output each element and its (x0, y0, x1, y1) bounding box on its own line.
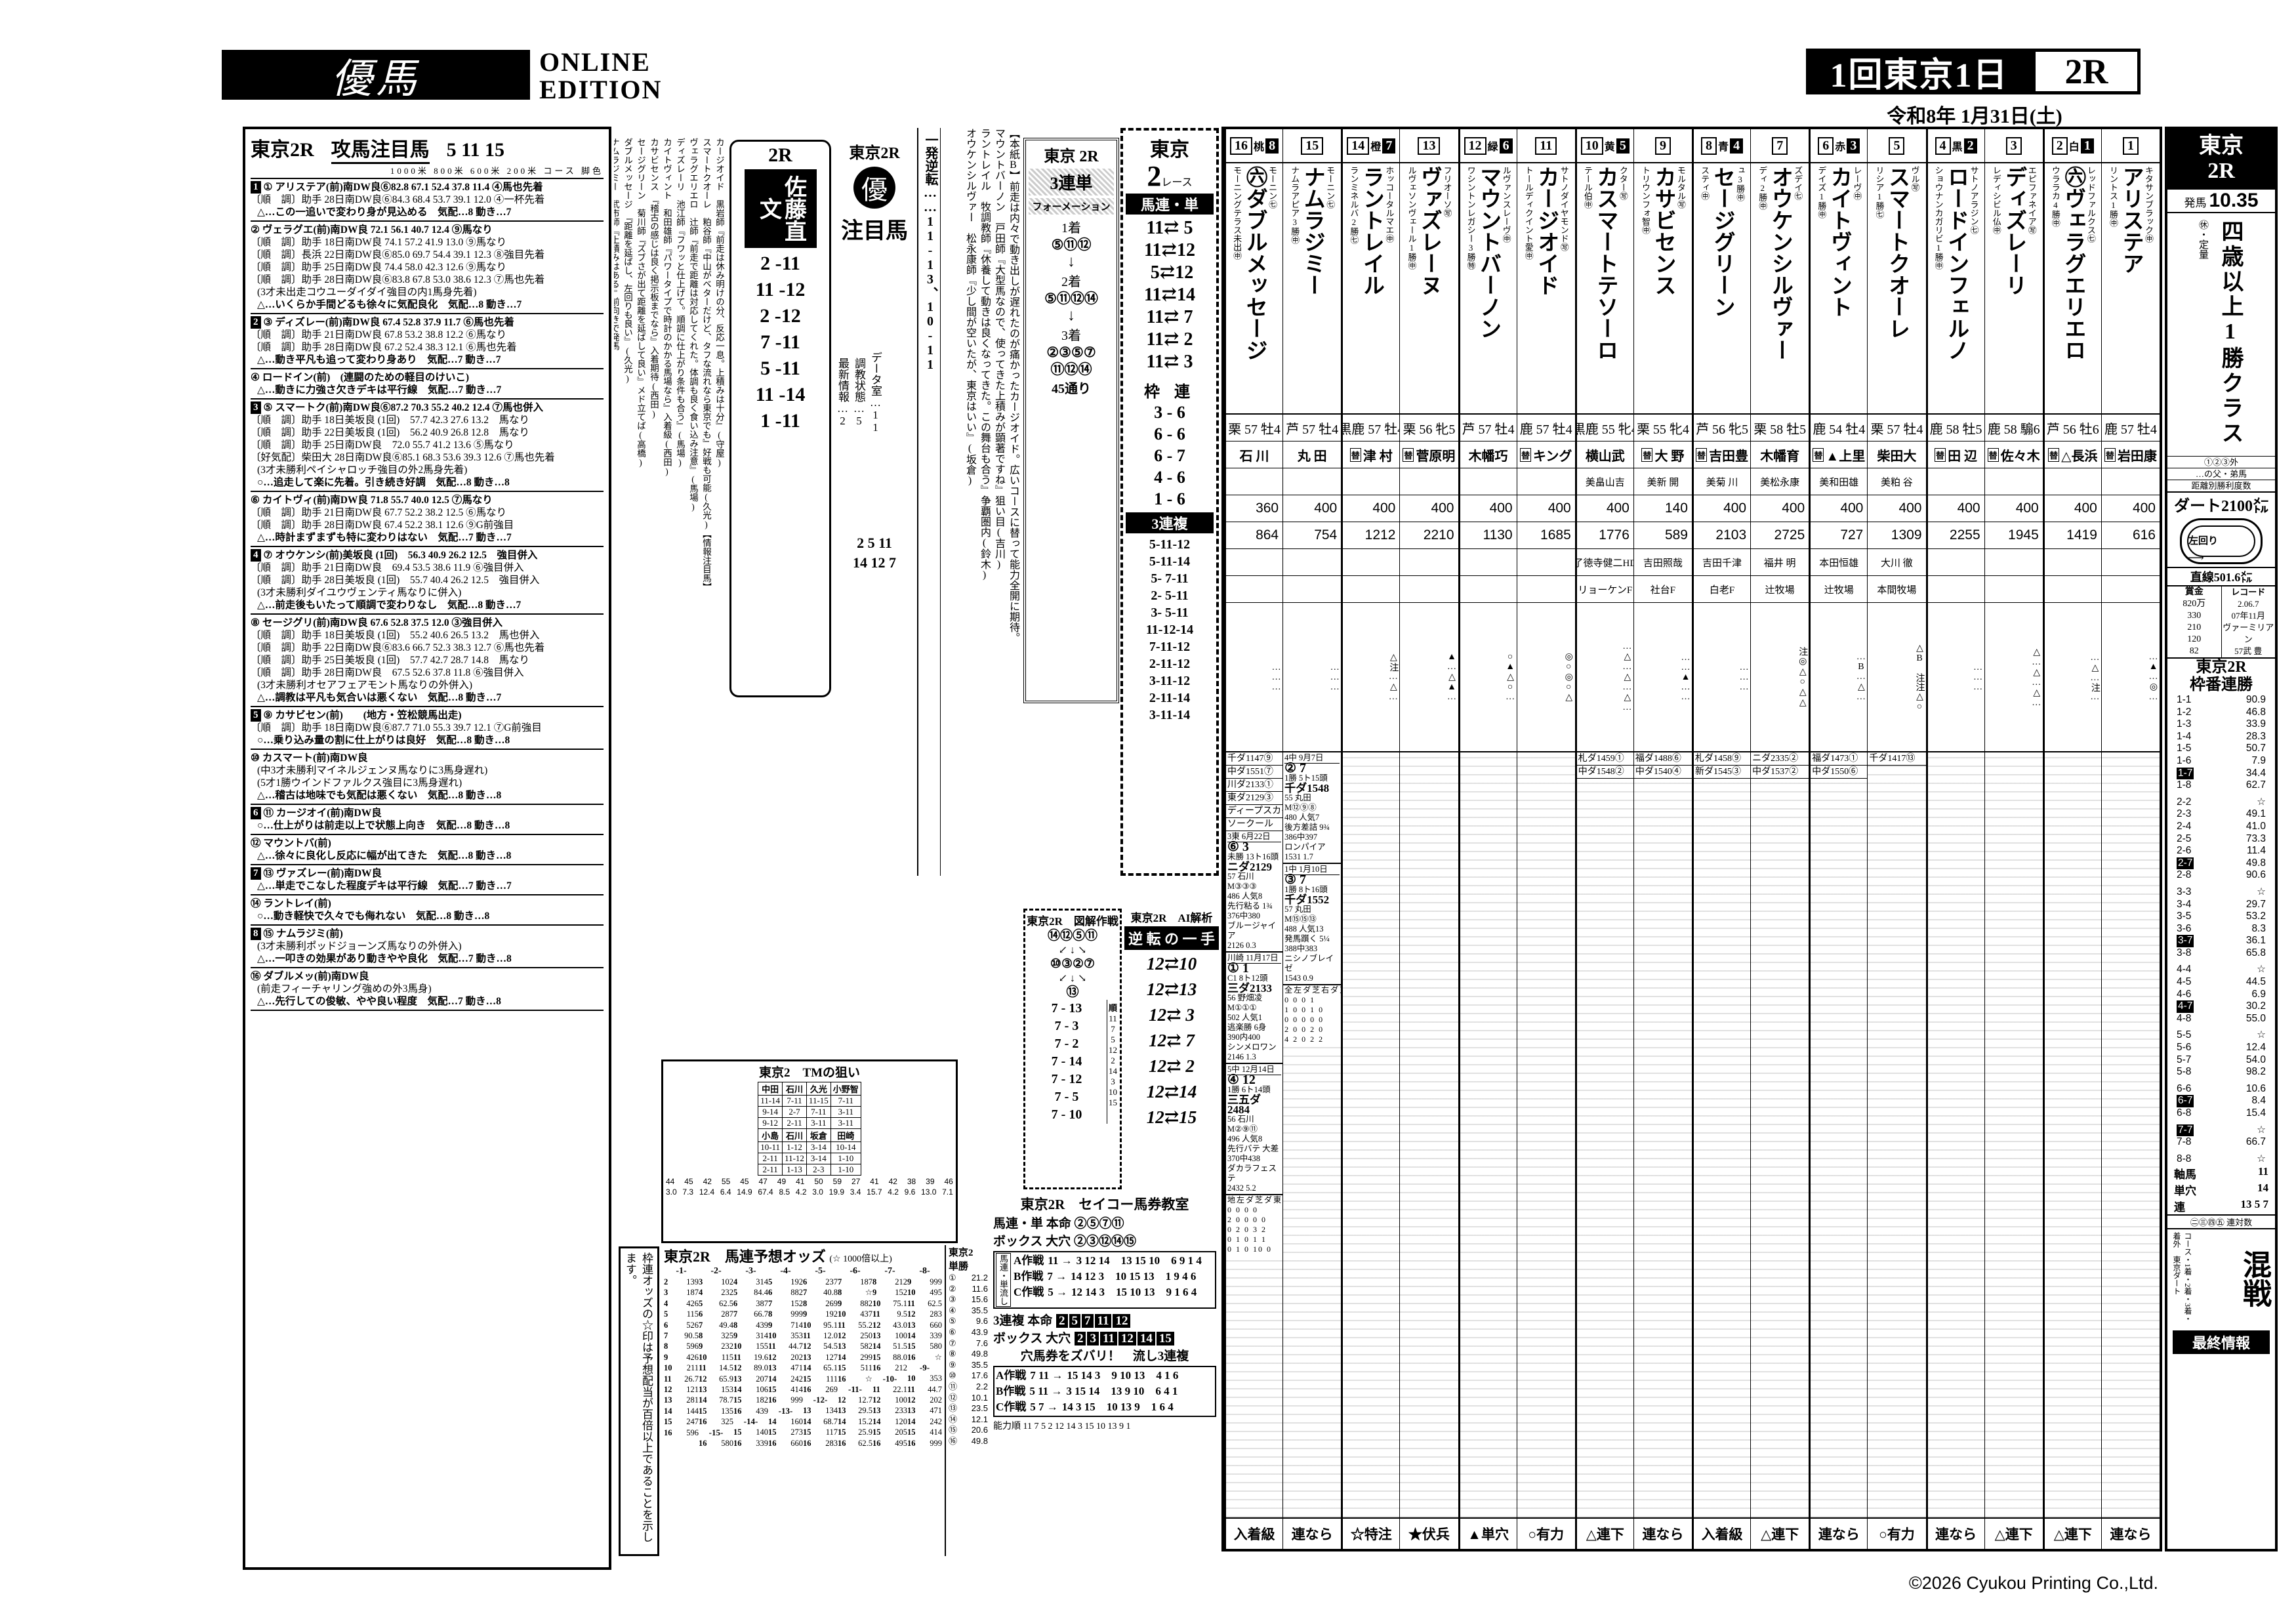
jockey-row[interactable]: 替田 辺 (1928, 442, 1984, 468)
omx-horse: 12 (872, 1395, 881, 1405)
post-time: 発馬 10.35 (2167, 188, 2275, 213)
waku-combo: 1-2 (2177, 707, 2191, 719)
omx-odds: 144 (686, 1406, 699, 1416)
omx-horse: 11 (803, 1330, 811, 1341)
horse-number: ⑨ (264, 709, 273, 722)
race-class-text: 四歳以上1勝クラス (2214, 220, 2246, 456)
owner-row (1283, 549, 1341, 576)
kyo-sanpuku2-num: 11 (1100, 1332, 1117, 1346)
sanrenpuku-label: 3連複 (1126, 512, 1214, 533)
omx-horse: 13 (907, 1320, 916, 1330)
waku-odds-value: 41.0 (2246, 821, 2266, 833)
workout-comment: △…この一追いで変わり身が見込める 気配…8 動き…7 (251, 206, 604, 218)
tm-index-value: 45 (740, 1177, 748, 1186)
omx-horse: 5 (699, 1298, 703, 1309)
past-performance-zone: 千ダ1417⑬ (1868, 752, 1925, 1519)
waku-combo: 3-4 (2177, 899, 2191, 911)
race-history-block: 1中 1月10日③ 71勝 8ト16頭千ダ155257 丸田M⑮⑮⑬488 人気… (1283, 864, 1341, 985)
strategy-axis: 5 → (1048, 1284, 1067, 1300)
attack-entry-head: ⑯ダブルメッ(前)南DW良 (251, 970, 604, 983)
omx-horse: 12 (907, 1395, 916, 1405)
horse-number: ⑥ (251, 494, 260, 506)
workout-line: 〔順 調〕助手 22日美坂良 (1回) 56.2 40.9 26.8 12.8 … (251, 426, 604, 439)
jockey-row[interactable]: 替キング (1517, 442, 1575, 468)
omx-horse: 14 (803, 1416, 811, 1427)
jockey-row[interactable]: 替大 野 (1634, 442, 1692, 468)
omx-column: -4-51926882715289999714103531144.7122021… (768, 1266, 803, 1448)
jockey-change-mark: 替 (1520, 448, 1531, 462)
omx-horse: 8 (699, 1330, 703, 1341)
omx-cell: 6237 (803, 1277, 838, 1287)
horse-name: カサビセンス (1651, 166, 1675, 413)
omx-cell: 584.4 (733, 1287, 768, 1298)
jockey-row[interactable]: 石 川 (1226, 442, 1282, 468)
omx-horse: 8 (664, 1341, 668, 1351)
waku-odds-note: 枠連オッズの☆印は予想配当が百倍以上であることを示します。 (619, 1246, 659, 1556)
prize-value: 820万 (2167, 598, 2221, 610)
tm-pick: 2-11 (758, 1164, 783, 1176)
zukai-pick: 7 - 2 (1027, 1035, 1107, 1053)
workout-comment: ○…乗り込み量の割に仕上がりは良好 気配…8 動き…8 (251, 734, 604, 747)
omx-odds: 339 (756, 1438, 768, 1448)
jockey-row[interactable]: 替津 村 (1343, 442, 1399, 468)
waku-combo: 1-6 (2177, 755, 2191, 768)
tansho-odds: 10.1 (972, 1393, 988, 1404)
tansho-title1: 東京2 (949, 1248, 974, 1258)
waku-combo: 1-1 (2177, 694, 2191, 707)
zukai-box: 東京2R 図解作戦 ⑭⑫⑤⑪↙ ↓ ↘⑩③②⑦↙ ↓ ↘⑬ 7 - 137 - … (1023, 909, 1122, 1189)
prize-row-1: 400 (1694, 495, 1750, 522)
farm-row: 辻牧場 (1751, 576, 1809, 603)
omx-horse: 15 (733, 1427, 742, 1437)
tansho-horse: ⑪ (949, 1382, 957, 1393)
farm-row: 本間牧場 (1868, 576, 1925, 603)
tm-pick: 7-11 (806, 1107, 830, 1118)
best-time-row: 福ダ1488⑥ (1634, 752, 1692, 766)
kyo-strategies: A作戦11 →3 12 14 13 15 10 6 9 1 4B作戦7 →14 … (1014, 1253, 1214, 1307)
omx-odds: 582 (860, 1341, 872, 1351)
omx-odds: 426 (686, 1352, 699, 1363)
race-history-block: 川崎 11月17日① 1C1 8ト12頭三ダ213356 野畑凌M①①①502 … (1226, 953, 1282, 1064)
waku-combo: 2-7 (2177, 857, 2194, 870)
omx-cell: 14242 (768, 1374, 803, 1384)
strategy-axis: 5 7 → (1030, 1399, 1058, 1415)
omx-odds: 511 (861, 1363, 872, 1373)
omx-cell: 13582 (838, 1341, 872, 1351)
waku-odds-value: 8.4 (2251, 1095, 2266, 1107)
ai-box: 東京2R AI解析 逆 転 の 一 手 12⇄1012⇄1312⇄ 312⇄ 7… (1124, 909, 1219, 1189)
pedigree-block: フリオーソ㊢ヴァズレーヌルヴェソンヴェール1勝㊥ (1400, 163, 1458, 415)
sanrentan-subtitle: フォーメーション (1029, 198, 1114, 215)
waku-combo: 3-3 (2177, 886, 2191, 899)
prize-row-2: 864 (1226, 522, 1282, 549)
omx-horse: 14 (907, 1416, 916, 1427)
waku-number: 6 (1500, 138, 1513, 154)
strategy-targets: 14 12 3 10 15 13 1 9 4 6 (1071, 1269, 1196, 1284)
waku-number: 2 (251, 316, 261, 329)
stable-comment: スマートクオーレ 粕谷師『中山がベターだけど、タフな流れなら東京でも』好戦も可能… (701, 138, 712, 1053)
coat-weight-row: 芦 57 牡4 (1460, 415, 1517, 442)
verdict-label: 連なら (2102, 1519, 2160, 1549)
owner-row (1517, 549, 1575, 576)
past-performance-zone: 札ダ1459①中ダ1548② (1577, 752, 1633, 1519)
ai-pick: 12⇄14 (1124, 1079, 1219, 1105)
tipster-marks: △注…△… (1343, 603, 1399, 752)
jockey-row[interactable]: 替菅原明 (1400, 442, 1458, 468)
workout-comment: △…動き平凡も追って変わり身あり 気配…7 動き…7 (251, 354, 604, 366)
jockey-row[interactable]: 替▲上里 (1811, 442, 1867, 468)
trainer-row: 美畠山吉 (1577, 468, 1633, 495)
race-bodyweight-pop: 488 人気13 (1284, 924, 1340, 934)
stat-row: 0 2 0 3 2 (1226, 1225, 1282, 1235)
omx-horse: 15 (872, 1427, 881, 1437)
chumoku-foot2: 14 12 7 (834, 553, 914, 573)
kyo-nagashi-label: 馬連・単流し (996, 1253, 1011, 1307)
workout-line: 〔順 調〕助手 25日南DW良 74.4 58.0 42.3 12.6 ⑨馬なり (251, 261, 604, 274)
omx-horse: 14 (872, 1416, 881, 1427)
omx-odds: 283 (930, 1309, 942, 1319)
jockey-row[interactable]: 柴田大 (1868, 442, 1925, 468)
tansho-horse: ⑤ (949, 1316, 956, 1327)
omx-horse: 12 (838, 1395, 846, 1405)
race-time: 三ダ2133 (1227, 983, 1281, 993)
owner-row: 大川 徹 (1868, 549, 1925, 576)
omx-cell: 14339 (907, 1330, 942, 1341)
attack-title: 東京2R (251, 133, 314, 162)
omx-odds: 117 (826, 1427, 838, 1437)
omx-title: 東京2R 馬連予想オッズ (664, 1248, 826, 1265)
tansho-row: ⑪2.2 (949, 1382, 988, 1393)
kyo-sanpuku: 2571112 (1056, 1314, 1131, 1328)
sire-name: ヴル㊢ (1909, 166, 1919, 413)
omx-odds: 102 (721, 1277, 733, 1287)
stat-row: 4 2 0 2 2 (1283, 1035, 1341, 1044)
family-row: ソークール (1226, 818, 1282, 831)
horse-column: 5ヴル㊢スマートクオーレリシア1勝㊆栗 57 牡4柴田大美粕 谷4001309大… (1867, 129, 1925, 1549)
omx-horse: 15 (733, 1395, 742, 1405)
race-positions: M①①① (1227, 1003, 1281, 1013)
tansho-odds: 49.8 (972, 1436, 988, 1447)
prize-row-1: 400 (1400, 495, 1458, 522)
pedigree-block: ルヴァンスレーヴ㊥マウントバーノンワシントンレガシー3勝㊕ (1460, 163, 1517, 415)
omx-horse: 13 (803, 1405, 811, 1416)
omx-cell: 13153 (699, 1384, 733, 1395)
pp-placeholder (2102, 752, 2160, 1517)
omx-inline-header: -13- (768, 1406, 803, 1416)
waku-combo: 4-5 (2177, 976, 2191, 989)
jockey-name: 吉田豊 (1709, 445, 1748, 464)
omx-cell: 9714 (768, 1320, 803, 1330)
attack-entry: 1①アリステア(前)南DW良⑥82.8 67.1 52.4 37.8 11.4 … (251, 179, 604, 222)
jockey-change-mark: 替 (2048, 448, 2059, 462)
waku-odds-row: 1-550.7 (2167, 743, 2275, 755)
horse-column-header: 16桃8 (1226, 129, 1282, 163)
omx-cell: 5115 (664, 1309, 699, 1319)
workout-line: 〔順 調〕助手 18日南DW良 74.1 57.2 41.9 13.0 ⑨馬なり (251, 236, 604, 249)
jockey-row[interactable]: 木幡育 (1751, 442, 1809, 468)
kyo-box: ②③⑫⑭⑮ (1074, 1235, 1136, 1248)
omx-odds: 29.5 (858, 1405, 872, 1416)
waku-group-gap (2167, 1120, 2275, 1124)
farm-row (1226, 576, 1282, 603)
course-distance: ダート2100㍍ (2167, 491, 2275, 516)
omx-cell: 15205 (872, 1427, 907, 1437)
horse-number: ⑯ (251, 970, 261, 983)
coat-weight-row: 芦 57 牡4 (1283, 415, 1341, 442)
race-date: 令和8年 1月31日(土) (1811, 100, 2139, 129)
omx-odds: 26.7 (684, 1374, 699, 1384)
workout-head: ナムラジミ(前) (276, 928, 343, 940)
pedigree-block: ヴル㊢スマートクオーレリシア1勝㊆ (1868, 163, 1925, 415)
tm-pick: 11-15 (806, 1096, 830, 1107)
waku-odds-row: 2-2☆ (2167, 796, 2275, 809)
omx-cell: 1212.7 (838, 1395, 872, 1405)
kyo-ability-order: 能力順 11 7 5 2 12 14 3 15 10 13 9 1 (993, 1419, 1216, 1432)
sire-name: モーニン㊆ (1267, 166, 1277, 413)
farm-row (2045, 576, 2101, 603)
omx-cell: 16269 (803, 1384, 838, 1395)
tier-numbers: ⑤⑪⑫ (1029, 236, 1114, 253)
dam-name: モーニングテラス未出㊥ (1231, 166, 1242, 413)
omx-odds: 78.7 (719, 1395, 733, 1405)
tansho-row: ⑨35.5 (949, 1360, 988, 1371)
strategy-targets: 3 12 14 13 15 10 6 9 1 4 (1076, 1253, 1202, 1269)
tm-box: 東京2 TMの狙い 中田石川久光小野智11-147-1111-157-119-1… (661, 1059, 958, 1243)
waku-odds-row: 5-754.0 (2167, 1054, 2275, 1067)
tansho-odds: 35.5 (972, 1360, 988, 1371)
coat-weight-row: 黒鹿 57 牡4 (1343, 415, 1399, 442)
owner-row: 本田恒雄 (1811, 549, 1867, 576)
race-positions: M⑮⑮⑬ (1284, 914, 1340, 924)
waku-combo: 5-5 (2177, 1029, 2191, 1042)
tm-name: 小島 (758, 1129, 783, 1142)
omx-odds: 495 (930, 1287, 942, 1298)
omx-cell: 13471 (907, 1405, 942, 1416)
tm-index-value: 50 (814, 1177, 823, 1186)
attack-entry-head: ⑭ラントレイ(前) (251, 897, 604, 910)
omx-horse: 10 (803, 1320, 811, 1330)
waku-combo: 5-7 (2177, 1054, 2191, 1067)
attack-entry: 2③ディズレー(前)南DW良 67.4 52.8 37.9 11.7 ⑥馬也先着… (251, 314, 604, 369)
omx-horse: 9 (907, 1277, 911, 1287)
jockey-row[interactable]: 替△長浜 (2045, 442, 2101, 468)
trainer-row (1985, 468, 2043, 495)
tm-pick: 3-11 (806, 1118, 830, 1129)
omx-horse: 10 (838, 1309, 846, 1319)
omx-horse: 12 (872, 1320, 881, 1330)
waku-odds-row: 6-78.4 (2167, 1095, 2275, 1107)
omx-horse: 10 (733, 1341, 742, 1351)
dam-name: レディシビル仏㊥ (1991, 166, 2001, 413)
strategy-name: C作戦 (1014, 1284, 1044, 1300)
waku-odds-value: 65.8 (2246, 947, 2266, 960)
omx-cell: 8596 (664, 1341, 699, 1351)
waku-combo: 1-3 (2177, 718, 2191, 731)
ai-badge: 逆 転 の 一 手 (1124, 926, 1219, 950)
tm-name: 石川 (783, 1129, 807, 1142)
waku-combo: 3-8 (2177, 947, 2191, 960)
omx-horse: 12 (733, 1363, 742, 1373)
prize-row-2: 1945 (1985, 522, 2043, 549)
omx-odds: 12.0 (823, 1330, 838, 1341)
workout-head: ラントレイ(前) (264, 897, 331, 910)
workout-comment: △…単走でこなした程度デキは平行線 気配…7 動き…7 (251, 880, 604, 892)
omx-odds: 233 (895, 1405, 907, 1416)
tm-rate-value: 3.4 (850, 1187, 861, 1197)
prize-row-2: 2255 (1928, 522, 1984, 549)
verdict-label: 入着級 (1694, 1519, 1750, 1549)
prize-row-2: 1309 (1868, 522, 1925, 549)
horse-column-header: 5 (1868, 129, 1925, 163)
pp-placeholder (1811, 779, 1867, 1517)
coat-weight-row: 芦 56 牡6 (2045, 415, 2101, 442)
waku-odds-row: 4-544.5 (2167, 976, 2275, 989)
waku-odds-value: ☆ (2257, 1029, 2266, 1042)
omx-grid: -1-21393187442651156526790.5859694261021… (664, 1266, 942, 1448)
tipster-marks: △B 注注△○ (1868, 603, 1925, 752)
tipster-marks: …B…△… (1811, 603, 1867, 752)
waku-combo: 2-3 (2177, 808, 2191, 821)
omx-cell: 7152 (768, 1298, 803, 1309)
omx-cell: 10211 (664, 1363, 699, 1373)
tansho-horse: ④ (949, 1305, 956, 1317)
attack-entry-head: 6⑪カージオイ(前)南DW良 (251, 807, 604, 819)
sato-pick: 7 -11 (734, 329, 827, 356)
waku-odds-value: 8.3 (2251, 923, 2266, 935)
tm-pick: 10-14 (830, 1142, 861, 1153)
ippatsu-gyakuten: 一発逆転……11-13、10-11 (917, 128, 941, 876)
owner-row: 了徳寺健二HD (1577, 549, 1633, 576)
yuma-logo: 優馬 (222, 50, 530, 100)
tm-name: 田崎 (830, 1129, 861, 1142)
jockey-row[interactable]: 木幡巧 (1460, 442, 1517, 468)
waku-odds-value: 98.2 (2246, 1066, 2266, 1079)
jockey-row[interactable]: 横山武 (1577, 442, 1633, 468)
waku-odds-value: 12.4 (2246, 1042, 2266, 1054)
kyo-sanpuku-num: 11 (1095, 1314, 1112, 1328)
horse-number: ① (264, 181, 273, 194)
attack-picks: 5 11 15 (447, 139, 504, 161)
waku-odds-row: 1-333.9 (2167, 718, 2275, 731)
jockey-name: 大 野 (1654, 445, 1684, 464)
tm-rate-value: 7.1 (942, 1187, 953, 1197)
omx-odds: 660 (790, 1438, 803, 1448)
omx-horse: 16 (664, 1428, 672, 1438)
omx-odds: 187 (860, 1277, 872, 1287)
jockey-row[interactable]: 替佐々木 (1985, 442, 2043, 468)
horse-column-header: 1 (2102, 129, 2160, 163)
chumoku-row: 最新情報…2 (834, 251, 851, 533)
omx-cell: 8☆ (838, 1287, 872, 1298)
chumoku-row: 調教状態…5 (851, 251, 867, 533)
waku-group-gap (2167, 792, 2275, 796)
omx-odds: 90.5 (684, 1330, 699, 1341)
tansho-row: ⑤9.6 (949, 1316, 988, 1327)
umt-pairs: 11⇄ 511⇄12 5⇄1211⇄1411⇄ 711⇄ 211⇄ 3 (1124, 217, 1215, 373)
workout-comment: △…徐々に良化し反応に幅が出てきた 気配…8 動き…8 (251, 850, 604, 862)
tipster-marks: ……… (1928, 603, 1984, 752)
waku-odds-value: 73.3 (2246, 833, 2266, 846)
jockey-name: 横山武 (1586, 445, 1625, 464)
jockey-row[interactable]: 替吉田豊 (1694, 442, 1750, 468)
best-time-row: 中ダ1550⑥ (1811, 766, 1867, 779)
workout-line: 〔順 調〕助手 25日南DW良 72.0 55.7 41.2 13.6 ⑤馬なり (251, 439, 604, 451)
final-info-badge: 最終情報 (2173, 1330, 2270, 1354)
omx-horse: 3 (699, 1277, 703, 1287)
waku-color-label: 青 (1718, 138, 1729, 154)
omx-column: -7-821291521075.1119.51243.0131001451.51… (872, 1266, 907, 1448)
omx-odds: 75.1 (893, 1298, 907, 1309)
tier-numbers: ②③⑤⑦ ⑪⑫⑭ (1029, 344, 1114, 378)
sanrenpuku-list: 5-11-125-11-145- 7-112- 5-113- 5-1111-12… (1124, 536, 1215, 724)
farm-row (1985, 576, 2043, 603)
pp-placeholder (1694, 779, 1750, 1517)
copyright: ©2026 Cyukou Printing Co.,Ltd. (1653, 1573, 2158, 1593)
horse-name: ロードインフェルノ (1944, 166, 1968, 413)
omx-note: (☆ 1000倍以上) (829, 1254, 892, 1264)
workout-comment: △…一叩きの効果があり動きやや良化 気配…7 動き…8 (251, 953, 604, 965)
tansho-odds: 17.6 (972, 1370, 988, 1382)
waku-number: 1 (2081, 138, 2094, 154)
kyo-ana-label: 穴馬券をズバリ！ 流し3連複 (993, 1346, 1216, 1364)
tm-pick-row: 11-147-1111-157-11 (758, 1096, 861, 1107)
workout-line: 〔順 調〕助手 18日南DW良⑥87.7 71.0 55.3 39.7 12.1… (251, 722, 604, 734)
dam-name: ワシントンレガシー3勝㊕ (1466, 166, 1476, 413)
prize-row-2: 1419 (2045, 522, 2101, 549)
jockey-row[interactable]: 丸 田 (1283, 442, 1341, 468)
meeting-banner: 1回東京1日 (1806, 49, 2032, 94)
omx-cell: 5192 (768, 1277, 803, 1287)
attack-subtitle: 攻馬注目馬 (331, 133, 430, 164)
waku-combo: 3-7 (2177, 935, 2194, 947)
straight-length: 直線501.6㍍ (2167, 567, 2275, 585)
waku-odds-row: 8-8☆ (2167, 1153, 2275, 1166)
omx-cell: 562.5 (699, 1298, 733, 1309)
race-info-column: 東京 2R 発馬 10.35 四歳以上1勝クラス ㊡・定量 ①②③外…の父・弟馬… (2165, 127, 2278, 1551)
omx-horse: 15 (838, 1427, 846, 1437)
stat-row: 0 0 0 0 0 (1283, 1015, 1341, 1025)
omx-odds: 62.5 (928, 1298, 942, 1309)
omx-cell: 1478.7 (699, 1395, 733, 1405)
waku-number: 4 (1730, 138, 1743, 154)
sato-pick: 2 -12 (734, 303, 827, 329)
waku-odds-value: 15.4 (2246, 1107, 2266, 1120)
omx-odds: 192 (790, 1277, 803, 1287)
jockey-row[interactable]: 替岩田康 (2102, 442, 2160, 468)
omx-cell: 9999 (907, 1277, 942, 1287)
workout-comment: △…稽古は地味でも気配は悪くない 気配…8 動き…8 (251, 789, 604, 802)
tansho-odds: 21.2 (972, 1273, 988, 1284)
workout-line: 〔順 調〕助手 21日南DW良 67.7 52.2 38.2 12.5 ⑥馬なり (251, 506, 604, 519)
tansho-row: ④35.5 (949, 1305, 988, 1317)
waku-number: 7 (251, 867, 261, 880)
omx-horse: 10 (664, 1363, 672, 1373)
omx-cell: 4314 (733, 1277, 768, 1287)
sato-pick: 11 -12 (734, 277, 827, 303)
waku-color-label: 緑 (1488, 138, 1498, 154)
zukai-arrows-icon: ↙ ↓ ↘ (1027, 972, 1118, 985)
tm-index-value: 59 (833, 1177, 842, 1186)
verdict-label: 連なら (1283, 1519, 1341, 1549)
waku-number: 6 (251, 807, 261, 819)
tm-pick: 3-11 (830, 1107, 861, 1118)
tm-pick: 7-11 (830, 1096, 861, 1107)
race-rival-time: 1543 0.9 (1284, 974, 1340, 983)
past-performance-zone: 4中 9月7日② 71勝 5ト15頭千ダ154855 丸田M⑫⑨⑧480 人気7… (1283, 752, 1341, 1519)
ai-title: 東京2R AI解析 (1124, 909, 1219, 925)
sire-name: キタサンブラック㊥ (2143, 166, 2154, 413)
tm-pick: 3-11 (830, 1118, 861, 1129)
